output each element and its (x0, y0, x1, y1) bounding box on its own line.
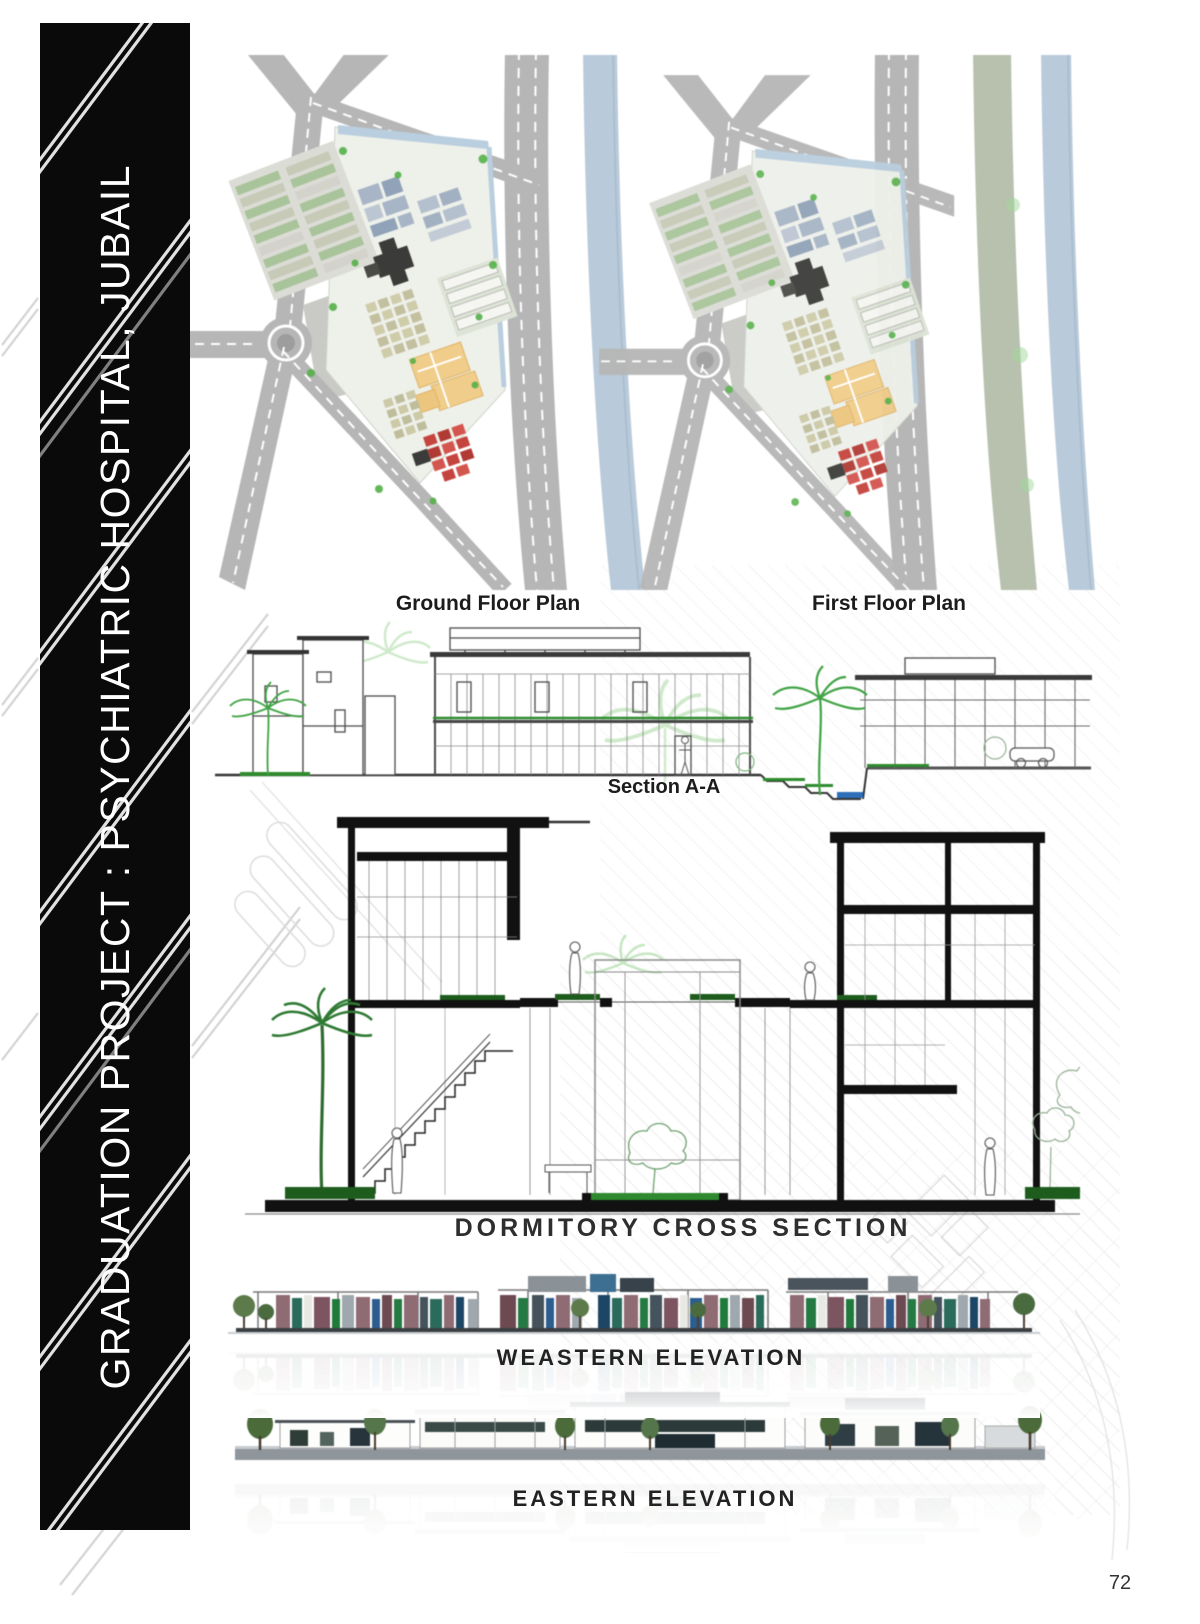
western-elevation-label: WEASTERN ELEVATION (497, 1345, 806, 1371)
dormitory-cross-section-label: DORMITORY CROSS SECTION (455, 1214, 912, 1243)
river-band-right (1041, 55, 1095, 590)
page-number: 72 (1109, 1572, 1131, 1595)
river-band-left (583, 55, 645, 590)
left-tower (337, 817, 590, 1200)
ground-band (265, 1200, 1055, 1212)
reflection-fade (225, 1472, 1055, 1552)
eastern-elevation-label: EASTERN ELEVATION (513, 1486, 798, 1512)
dormitory-cross-section-drawing (245, 795, 1080, 1219)
palm-tree (272, 988, 372, 1195)
greenbelt-band (973, 55, 1037, 590)
title-banner: GRADUATION PROJECT : PSYCHIATRIC HOSPITA… (40, 23, 190, 1530)
western-elevation-drawing (228, 1268, 1040, 1343)
project-title: GRADUATION PROJECT : PSYCHIATRIC HOSPITA… (92, 164, 139, 1389)
section-aa-label: Section A-A (608, 776, 721, 799)
band-road-left-plan (504, 55, 567, 590)
green-bed-left (285, 1187, 375, 1199)
ground-floor-plan-label: Ground Floor Plan (396, 592, 580, 616)
right-tower (790, 832, 1045, 1200)
first-floor-plan-label: First Floor Plan (812, 592, 966, 616)
facade-panels (276, 1295, 990, 1328)
ground-floor-plan-drawing (177, 55, 543, 590)
site-plans-figure (175, 55, 1100, 590)
courtyard-middle (520, 942, 845, 1207)
